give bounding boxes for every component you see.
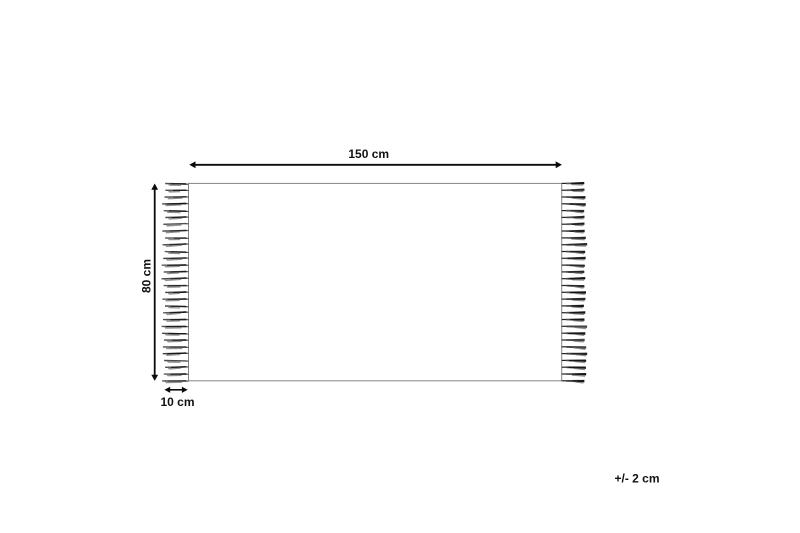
svg-text:10 cm: 10 cm [160, 395, 194, 409]
svg-text:80 cm: 80 cm [140, 259, 154, 293]
svg-text:150 cm: 150 cm [348, 147, 389, 161]
svg-text:+/- 2 cm: +/- 2 cm [614, 472, 659, 486]
